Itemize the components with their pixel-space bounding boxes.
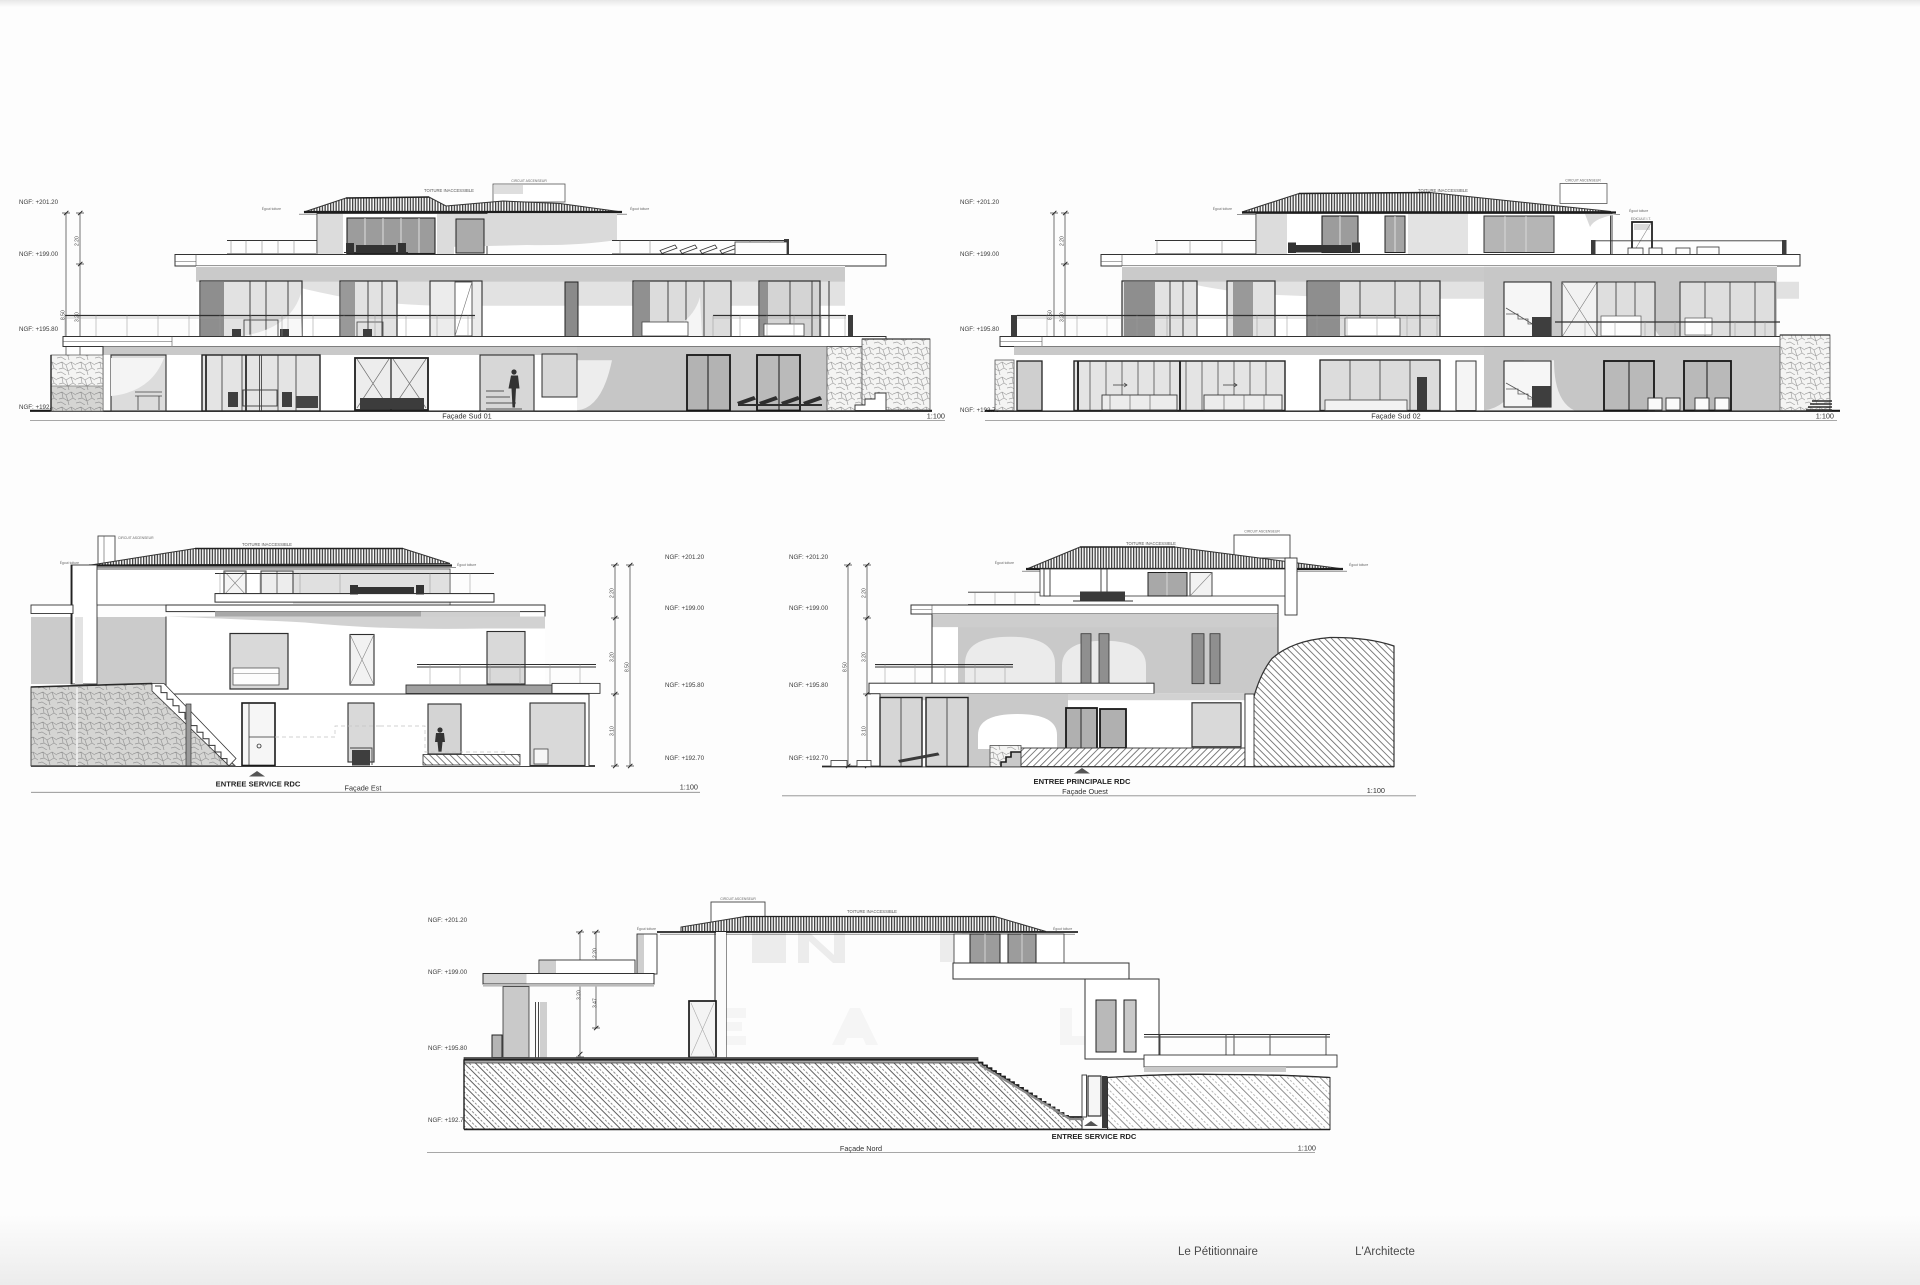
svg-text:Façade Sud 01: Façade Sud 01	[442, 412, 492, 421]
svg-text:Égout toiture: Égout toiture	[262, 206, 281, 211]
svg-text:1:100: 1:100	[927, 412, 945, 421]
svg-text:1:100: 1:100	[1298, 1144, 1316, 1153]
svg-text:NGF: +199.00: NGF: +199.00	[428, 969, 468, 976]
svg-text:ENTREE SERVICE RDC: ENTREE SERVICE RDC	[216, 780, 301, 789]
svg-text:CIRCUIT ASCENSEUR: CIRCUIT ASCENSEUR	[1244, 530, 1280, 534]
svg-text:NGF: +192.70: NGF: +192.70	[665, 755, 705, 762]
svg-text:8.50: 8.50	[843, 662, 849, 672]
svg-text:1:100: 1:100	[1816, 412, 1834, 421]
svg-text:EDICULE I.T.: EDICULE I.T.	[1631, 217, 1651, 221]
svg-text:CIRCUIT ASCENSEUR: CIRCUIT ASCENSEUR	[1565, 179, 1601, 183]
svg-text:Façade Sud 02: Façade Sud 02	[1371, 412, 1421, 421]
svg-text:Le Pétitionnaire: Le Pétitionnaire	[1178, 1246, 1258, 1258]
svg-text:ENTREE PRINCIPALE RDC: ENTREE PRINCIPALE RDC	[1034, 777, 1131, 786]
svg-text:3.20: 3.20	[862, 652, 868, 662]
svg-text:Égout toiture: Égout toiture	[637, 926, 656, 931]
svg-text:Égout toiture: Égout toiture	[630, 206, 649, 211]
svg-text:Égout toiture: Égout toiture	[995, 560, 1014, 565]
svg-text:NGF: +201.20: NGF: +201.20	[960, 199, 1000, 206]
svg-text:NGF: +201.20: NGF: +201.20	[665, 554, 705, 561]
svg-text:NGF: +201.20: NGF: +201.20	[19, 199, 59, 206]
svg-text:ENTREE SERVICE RDC: ENTREE SERVICE RDC	[1052, 1132, 1137, 1141]
svg-text:NGF: +192.70: NGF: +192.70	[789, 755, 829, 762]
svg-text:NGF: +195.80: NGF: +195.80	[428, 1045, 468, 1052]
svg-text:Façade Ouest: Façade Ouest	[1062, 787, 1108, 796]
svg-text:NGF: +195.80: NGF: +195.80	[960, 326, 1000, 333]
svg-text:L'Architecte: L'Architecte	[1355, 1246, 1415, 1258]
svg-text:Égout toiture: Égout toiture	[1629, 208, 1648, 213]
svg-text:NGF: +201.20: NGF: +201.20	[789, 554, 829, 561]
svg-text:NGF: +199.00: NGF: +199.00	[960, 251, 1000, 258]
svg-text:TOITURE INACCESSIBLE: TOITURE INACCESSIBLE	[1126, 541, 1176, 546]
svg-text:Égout toiture: Égout toiture	[1053, 926, 1072, 931]
svg-text:3.20: 3.20	[75, 312, 81, 322]
svg-text:NGF: +199.00: NGF: +199.00	[789, 605, 829, 612]
svg-text:2.20: 2.20	[610, 588, 616, 598]
svg-text:NGF: +199.00: NGF: +199.00	[665, 605, 705, 612]
svg-text:NGF: +201.20: NGF: +201.20	[428, 917, 468, 924]
svg-text:2.20: 2.20	[593, 948, 599, 958]
svg-text:TOITURE INACCESSIBLE: TOITURE INACCESSIBLE	[847, 909, 897, 914]
svg-text:Égout toiture: Égout toiture	[457, 562, 476, 567]
svg-text:CIRCUIT ASCENSEUR: CIRCUIT ASCENSEUR	[118, 536, 154, 540]
svg-text:2.20: 2.20	[1060, 236, 1066, 246]
svg-text:8.50: 8.50	[625, 662, 631, 672]
svg-text:3.10: 3.10	[610, 726, 616, 736]
svg-text:Façade Nord: Façade Nord	[840, 1144, 882, 1153]
svg-text:Égout toiture: Égout toiture	[1349, 562, 1368, 567]
svg-text:TOITURE INACCESSIBLE: TOITURE INACCESSIBLE	[424, 188, 474, 193]
svg-text:3.47: 3.47	[593, 998, 599, 1008]
svg-text:1:100: 1:100	[680, 783, 698, 792]
svg-text:NGF: +199.00: NGF: +199.00	[19, 251, 59, 258]
svg-text:1:100: 1:100	[1367, 786, 1385, 795]
svg-text:3.20: 3.20	[1060, 312, 1066, 322]
svg-text:NGF: +195.80: NGF: +195.80	[19, 326, 59, 333]
svg-text:3.10: 3.10	[862, 726, 868, 736]
svg-text:3.20: 3.20	[610, 652, 616, 662]
svg-text:CIRCUIT ASCENSEUR: CIRCUIT ASCENSEUR	[511, 179, 547, 183]
svg-text:2.20: 2.20	[75, 236, 81, 246]
svg-text:3.20: 3.20	[577, 990, 583, 1000]
svg-text:TOITURE INACCESSIBLE: TOITURE INACCESSIBLE	[242, 542, 292, 547]
svg-text:Égout toiture: Égout toiture	[1213, 206, 1232, 211]
svg-text:Façade Est: Façade Est	[345, 784, 382, 793]
svg-text:NGF: +195.80: NGF: +195.80	[665, 682, 705, 689]
svg-text:CIRCUIT ASCENSEUR: CIRCUIT ASCENSEUR	[720, 897, 756, 901]
svg-text:TOITURE INACCESSIBLE: TOITURE INACCESSIBLE	[1418, 188, 1468, 193]
svg-text:2.20: 2.20	[862, 588, 868, 598]
svg-text:NGF: +192.70: NGF: +192.70	[428, 1117, 468, 1124]
svg-text:NGF: +195.80: NGF: +195.80	[789, 682, 829, 689]
svg-text:Égout toiture: Égout toiture	[60, 560, 79, 565]
